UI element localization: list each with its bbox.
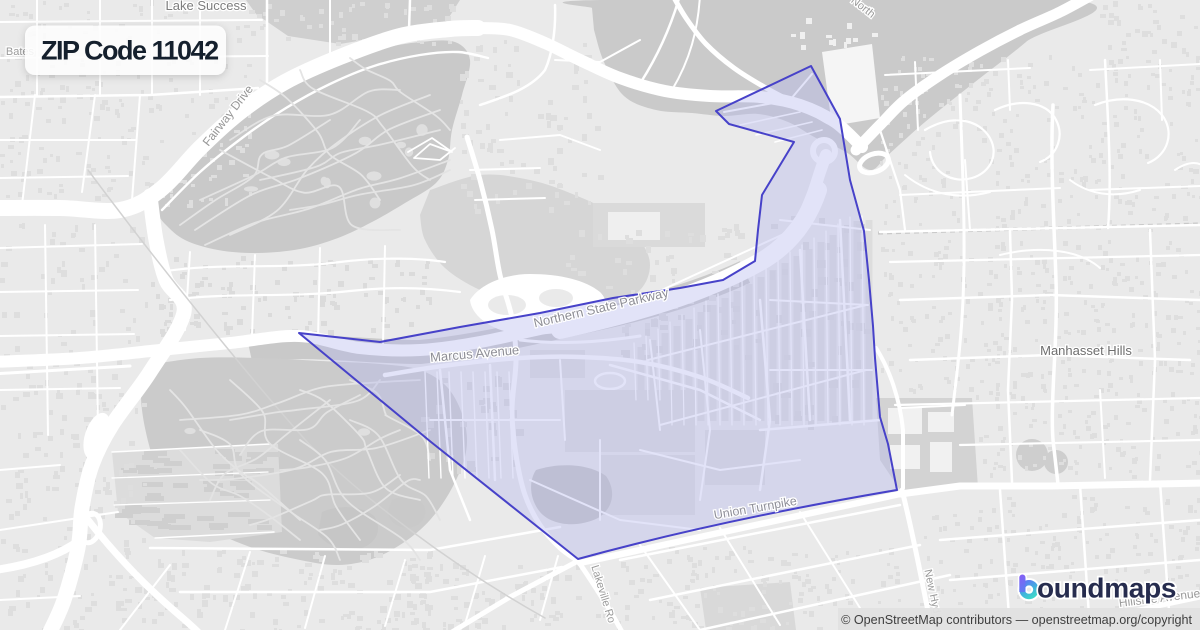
svg-text:Lake Success: Lake Success — [166, 0, 247, 13]
svg-text:Manhasset Hills: Manhasset Hills — [1040, 343, 1132, 358]
svg-text:oundmaps: oundmaps — [1037, 573, 1176, 604]
svg-text:ZIP Code 11042: ZIP Code 11042 — [41, 36, 218, 66]
svg-text:© OpenStreetMap contributors —: © OpenStreetMap contributors — openstree… — [841, 613, 1192, 627]
